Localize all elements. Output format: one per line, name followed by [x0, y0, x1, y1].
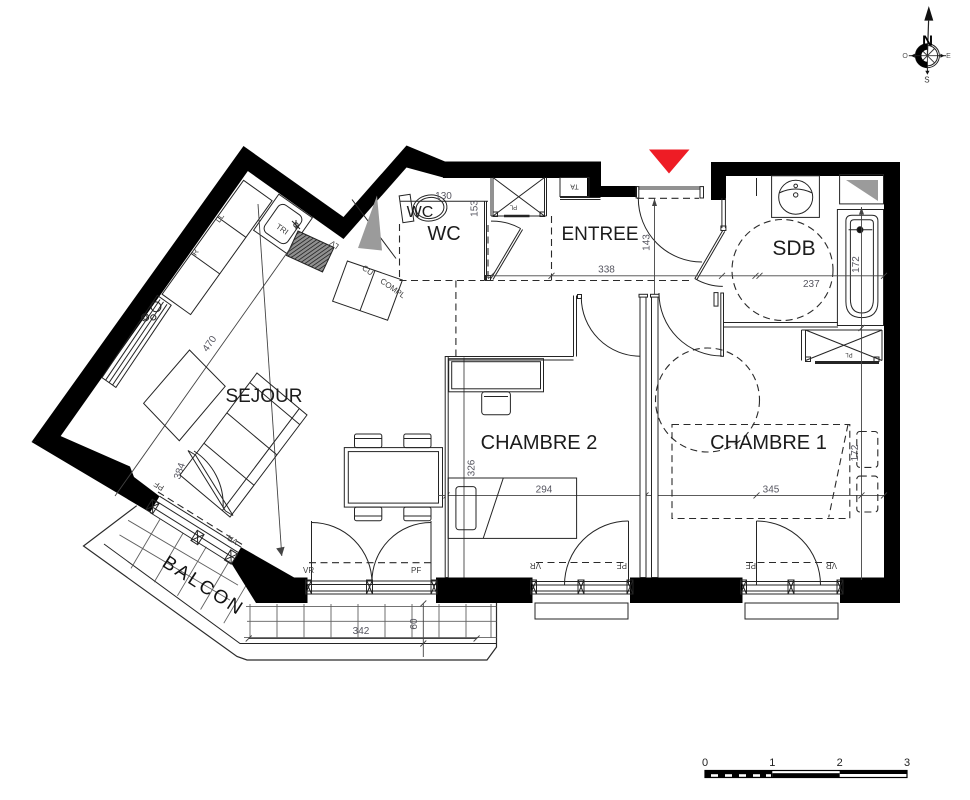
svg-text:ENTREE: ENTREE [561, 224, 638, 245]
svg-text:172: 172 [850, 444, 861, 461]
svg-text:PF: PF [411, 566, 421, 575]
svg-text:S: S [924, 75, 929, 84]
svg-text:338: 338 [598, 265, 615, 276]
svg-text:N: N [922, 33, 933, 50]
svg-text:342: 342 [353, 626, 370, 637]
svg-text:60: 60 [409, 618, 420, 630]
svg-text:WC: WC [427, 223, 460, 245]
svg-text:PL: PL [509, 204, 517, 210]
svg-text:WC: WC [407, 204, 434, 221]
svg-text:PL: PL [845, 351, 853, 357]
svg-text:VR: VR [530, 561, 541, 570]
svg-text:VR: VR [826, 561, 837, 570]
svg-text:SDB: SDB [772, 237, 815, 260]
svg-text:143: 143 [642, 234, 653, 251]
svg-text:237: 237 [803, 279, 820, 290]
svg-text:2: 2 [837, 757, 843, 769]
svg-text:E: E [946, 53, 951, 60]
svg-text:130: 130 [435, 191, 452, 202]
svg-text:345: 345 [763, 485, 780, 496]
svg-text:1: 1 [769, 757, 775, 769]
svg-text:0: 0 [702, 757, 708, 769]
svg-text:326: 326 [466, 459, 477, 476]
svg-text:SEJOUR: SEJOUR [225, 386, 302, 407]
svg-text:VR: VR [303, 566, 314, 575]
svg-text:O: O [902, 53, 908, 60]
svg-text:CHAMBRE 1: CHAMBRE 1 [710, 432, 827, 454]
svg-text:172: 172 [851, 256, 862, 273]
svg-text:153: 153 [470, 200, 481, 217]
svg-text:294: 294 [536, 485, 553, 496]
svg-text:PF: PF [617, 561, 627, 570]
svg-text:TA: TA [570, 183, 579, 190]
svg-text:3: 3 [904, 757, 910, 769]
svg-text:CHAMBRE 2: CHAMBRE 2 [481, 432, 598, 454]
svg-text:PF: PF [746, 561, 756, 570]
